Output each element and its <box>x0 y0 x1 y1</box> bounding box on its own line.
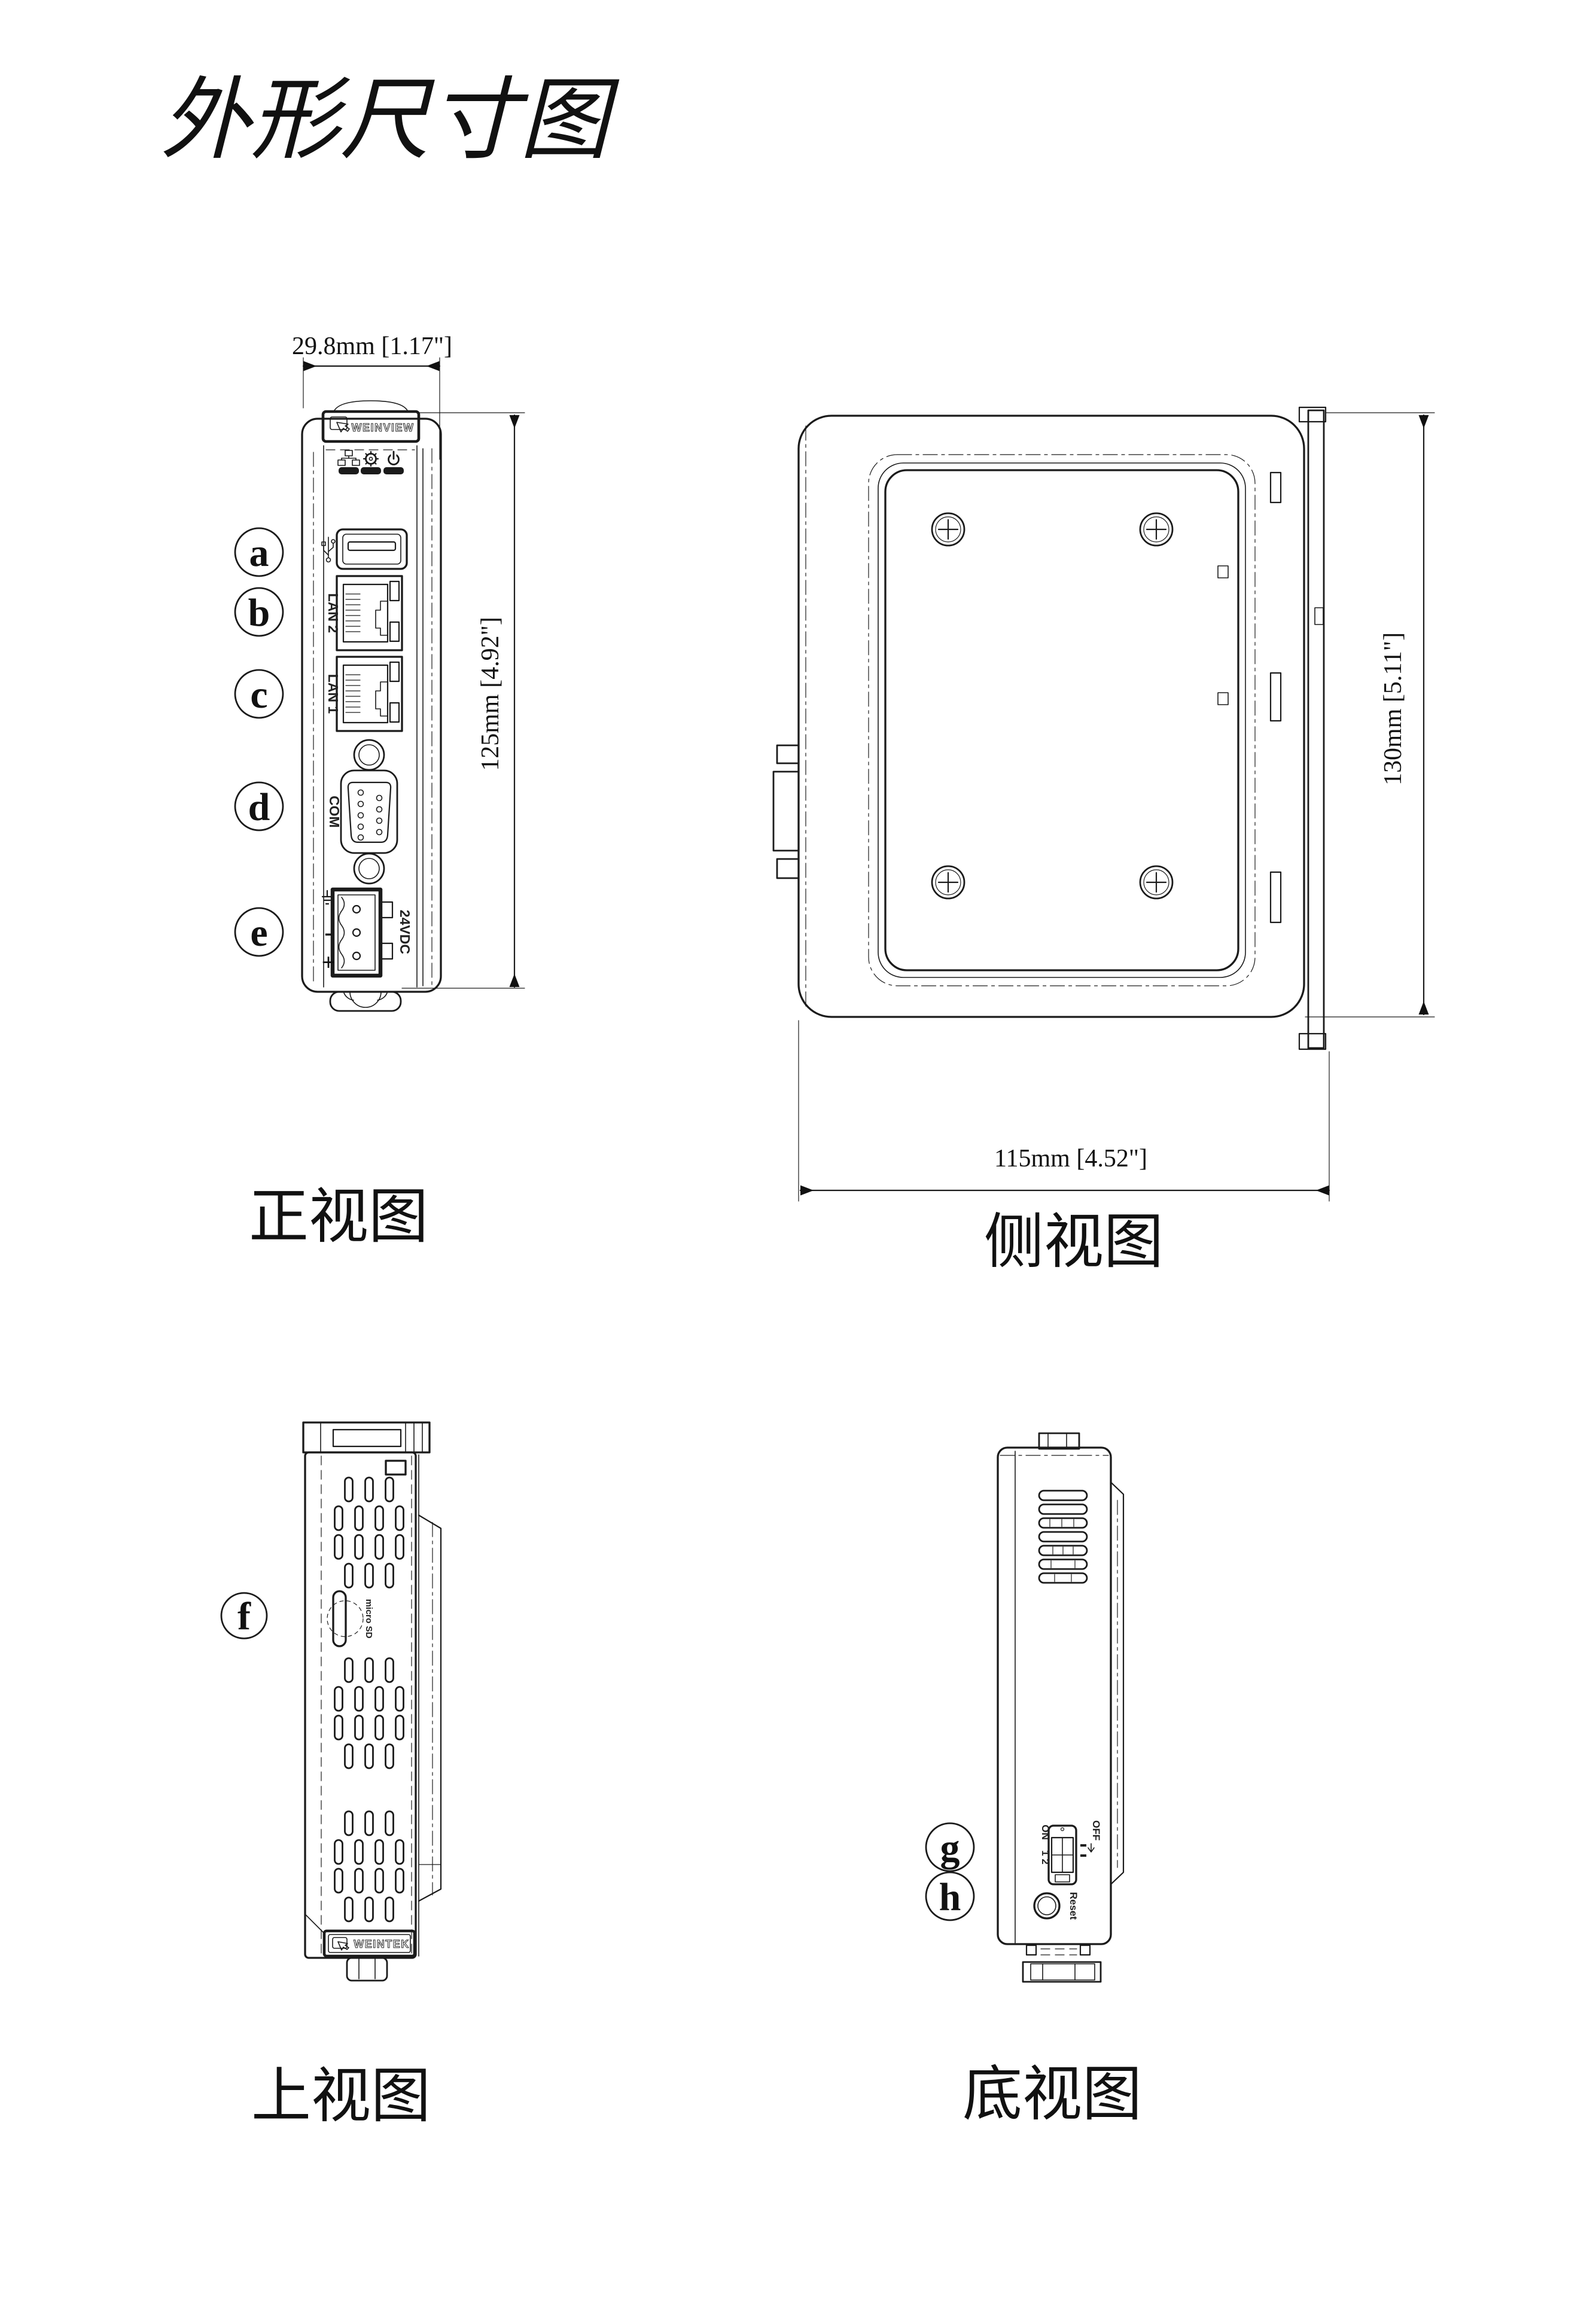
side-view-label: 侧视图 <box>984 1209 1164 1275</box>
outline-dimension-page: 外形尺寸图 29.8mm [1.17"] 125mm [4.92"] <box>0 0 1596 2306</box>
front-brand-badge: WEINVIEW <box>323 412 419 441</box>
bottom-view: ON 1 2 OFF Reset <box>926 1433 1142 2128</box>
lan2-label: LAN 2 <box>325 593 341 633</box>
vent-cluster-3 <box>335 1811 404 1921</box>
bottom-vent-slots <box>1039 1491 1087 1583</box>
power-label: 24VDC <box>397 910 413 954</box>
dip-switch: ON 1 2 OFF <box>1040 1820 1102 1884</box>
callout-c: c <box>235 670 283 718</box>
side-view: 130mm [5.11"] 115mm [4.52"] 侧视图 <box>773 407 1434 1275</box>
lan1-label: LAN 1 <box>325 674 341 714</box>
front-view: 29.8mm [1.17"] 125mm [4.92"] <box>235 333 525 1250</box>
side-com-connector <box>773 745 799 878</box>
svg-text:e: e <box>250 911 267 955</box>
dip-on-label: ON <box>1040 1824 1051 1840</box>
dip-channels-label: 1 2 <box>1040 1850 1051 1865</box>
side-depth-dimension: 115mm [4.52"] <box>799 1021 1329 1201</box>
bottom-view-label: 底视图 <box>963 2061 1142 2128</box>
sd-card-label: micro SD <box>364 1599 374 1638</box>
top-brand-badge: WEINTEK <box>324 1931 415 1956</box>
side-height-dim-label: 130mm [5.11"] <box>1379 632 1407 785</box>
front-width-dim-label: 29.8mm [1.17"] <box>292 333 452 360</box>
screw-top-left <box>932 513 964 546</box>
page-title: 外形尺寸图 <box>160 71 620 170</box>
top-brand-label: WEINTEK <box>354 1938 410 1950</box>
screw-bottom-left <box>932 866 964 898</box>
svg-text:d: d <box>248 785 270 829</box>
top-view-label: 上视图 <box>251 2063 431 2130</box>
front-height-dimension: 125mm [4.92"] <box>402 413 525 988</box>
minus-label: - <box>324 919 332 946</box>
top-bump <box>334 401 408 412</box>
front-view-label: 正视图 <box>249 1184 428 1250</box>
vent-cluster-1 <box>335 1478 404 1588</box>
front-height-dim-label: 125mm [4.92"] <box>477 617 504 770</box>
callout-h: h <box>926 1872 974 1920</box>
plus-label: + <box>322 949 336 976</box>
top-din-flange <box>419 1515 441 1901</box>
front-device-body: WEINVIEW <box>302 401 441 1011</box>
top-indicator-window <box>386 1461 406 1475</box>
reset-button: Reset <box>1034 1892 1079 1920</box>
svg-text:h: h <box>939 1875 961 1919</box>
dip-off-label: OFF <box>1091 1820 1102 1841</box>
bottom-device-body: ON 1 2 OFF Reset <box>998 1433 1123 1982</box>
callout-b: b <box>235 588 283 636</box>
down-arrow-icon <box>1088 1844 1094 1852</box>
callout-a: a <box>235 528 283 576</box>
reset-label: Reset <box>1068 1892 1079 1920</box>
lan2-port: LAN 2 <box>325 576 402 650</box>
side-device-body <box>773 407 1326 1049</box>
status-icons <box>338 450 404 474</box>
usb-port <box>322 529 407 569</box>
callout-d: d <box>235 782 283 830</box>
screw-bottom-right <box>1140 866 1172 898</box>
top-view: micro SD WEINTEK f 上视图 <box>221 1422 441 2130</box>
power-terminal: - + 24VDC <box>322 889 413 976</box>
com-port: COM <box>327 740 397 884</box>
led-slot-power <box>383 467 404 474</box>
ethernet-icon <box>338 450 360 465</box>
svg-text:b: b <box>248 591 270 635</box>
sd-card-slot: micro SD <box>327 1591 374 1646</box>
top-bottom-tab <box>347 1958 387 1981</box>
front-din-clip <box>330 992 401 1011</box>
bottom-clip-area <box>1023 1945 1101 1982</box>
dimension-drawing-svg: 外形尺寸图 29.8mm [1.17"] 125mm [4.92"] <box>0 0 1596 2306</box>
led-slot-ethernet <box>339 467 359 474</box>
callout-f: f <box>221 1593 267 1638</box>
side-depth-dim-label: 115mm [4.52"] <box>994 1145 1147 1172</box>
svg-text:a: a <box>249 531 269 575</box>
vent-cluster-2 <box>335 1658 404 1768</box>
com-label: COM <box>327 796 342 828</box>
svg-text:c: c <box>250 673 267 717</box>
screw-top-right <box>1140 513 1172 546</box>
led-slot-settings <box>361 467 381 474</box>
top-device-body: micro SD WEINTEK <box>303 1422 441 1981</box>
lan1-port: LAN 1 <box>325 657 402 731</box>
gear-icon <box>364 452 378 466</box>
front-brand-label: WEINVIEW <box>352 422 415 434</box>
touch-hand-icon <box>333 1938 349 1950</box>
svg-text:g: g <box>940 1826 960 1870</box>
callout-g: g <box>926 1823 974 1871</box>
callout-e: e <box>235 908 283 956</box>
power-icon <box>389 452 399 465</box>
svg-text:f: f <box>237 1595 251 1638</box>
bottom-top-tab <box>1039 1433 1079 1449</box>
